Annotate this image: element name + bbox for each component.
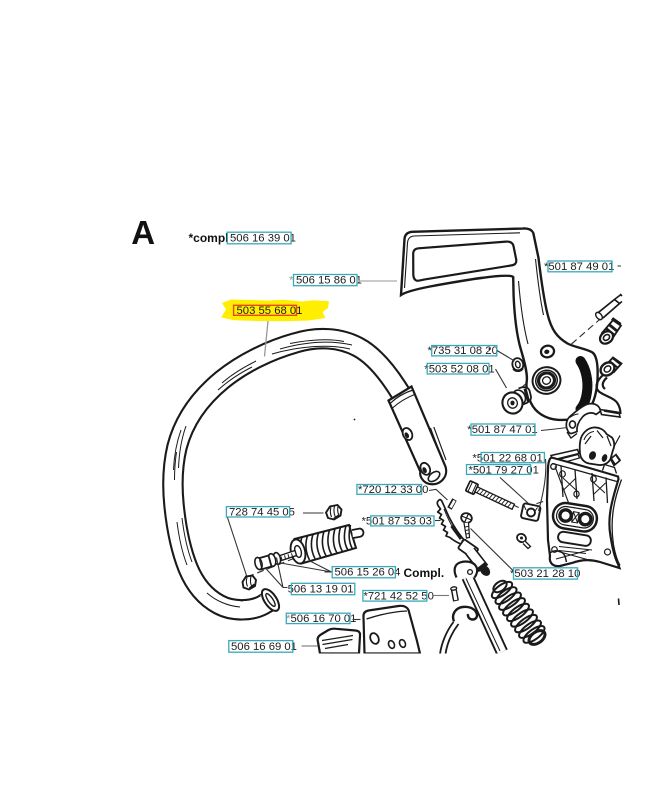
svg-text:*501 87 47 01: *501 87 47 01	[467, 424, 537, 436]
svg-text:A: A	[131, 214, 155, 251]
svg-text:506 16 39 01: 506 16 39 01	[230, 233, 296, 245]
svg-text:506 15 26 04: 506 15 26 04	[335, 567, 401, 579]
svg-text:506 15 86 01: 506 15 86 01	[296, 275, 362, 287]
svg-text:Compl.: Compl.	[404, 566, 445, 580]
svg-text:506 13 19 01: 506 13 19 01	[288, 584, 354, 596]
svg-text:*compl: *compl	[189, 231, 229, 245]
svg-text:506 16 69 01: 506 16 69 01	[231, 641, 297, 653]
svg-text:*503 21 28 10: *503 21 28 10	[510, 568, 580, 580]
